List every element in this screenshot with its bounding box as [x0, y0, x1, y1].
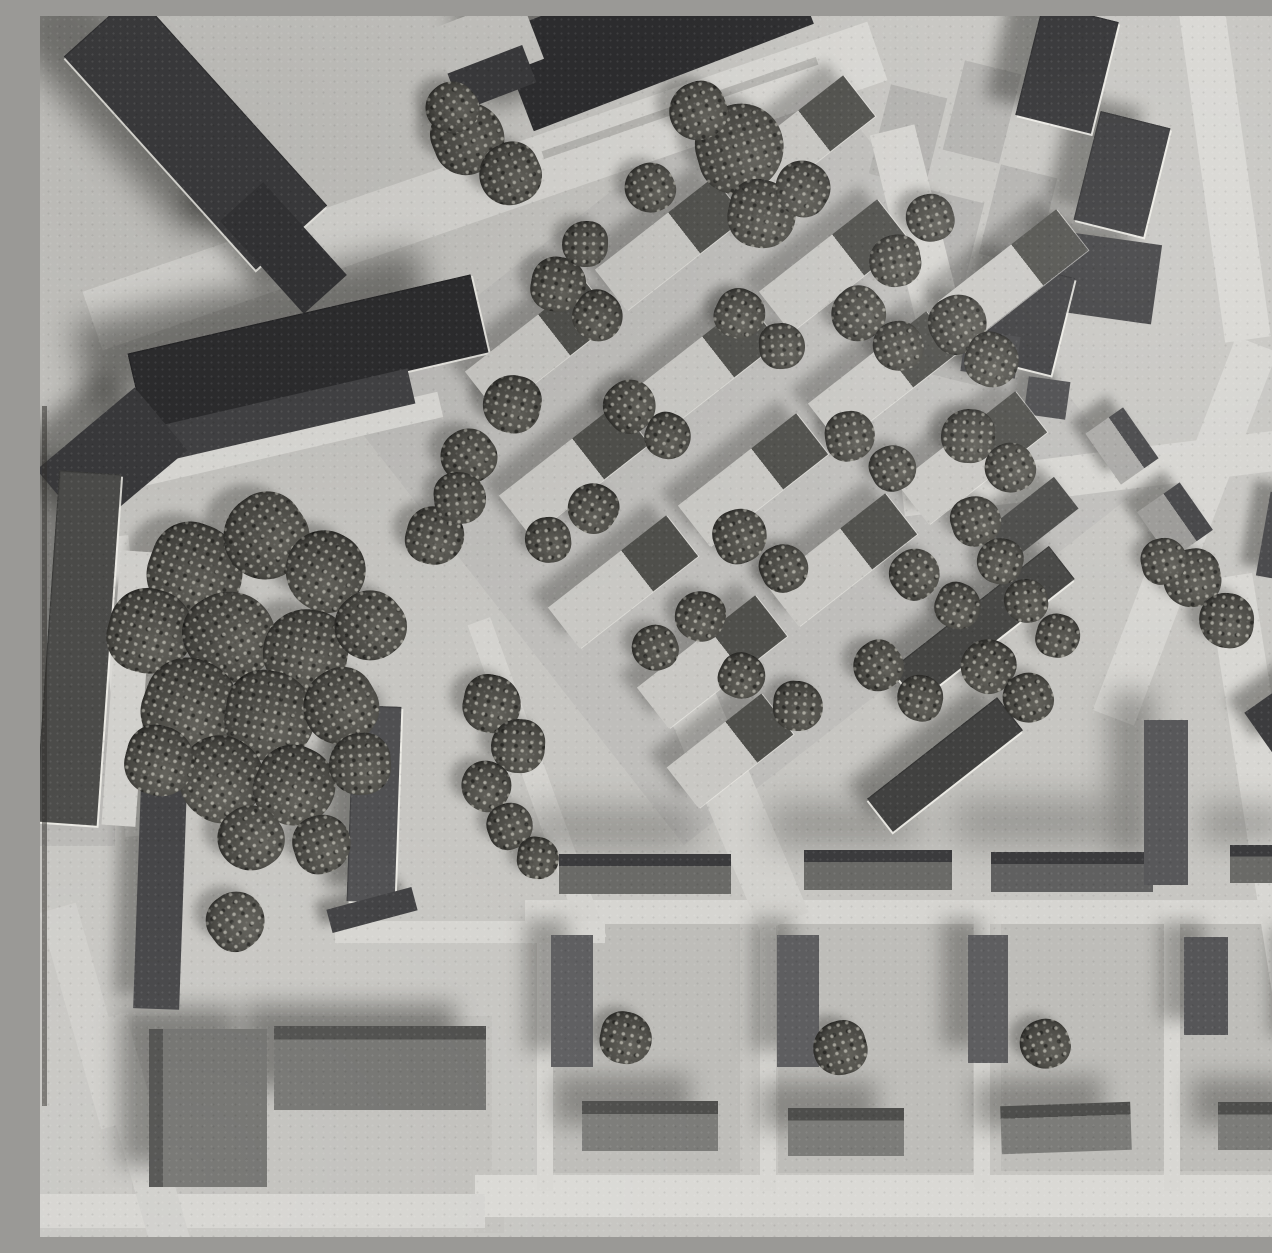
marks-layer: [40, 16, 1272, 1237]
film-edge-line: [42, 406, 47, 1106]
aerial-photo-architectural-model: Black-and-white aerial photograph of an …: [40, 16, 1272, 1237]
